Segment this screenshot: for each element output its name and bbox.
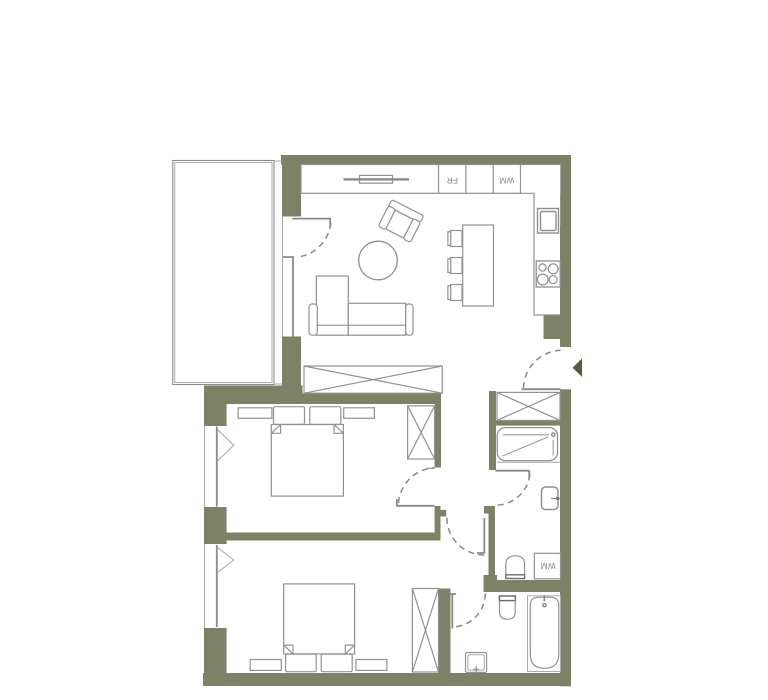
svg-text:WM: WM [499,176,514,185]
svg-text:FR: FR [446,176,458,185]
svg-text:WM: WM [540,561,555,570]
